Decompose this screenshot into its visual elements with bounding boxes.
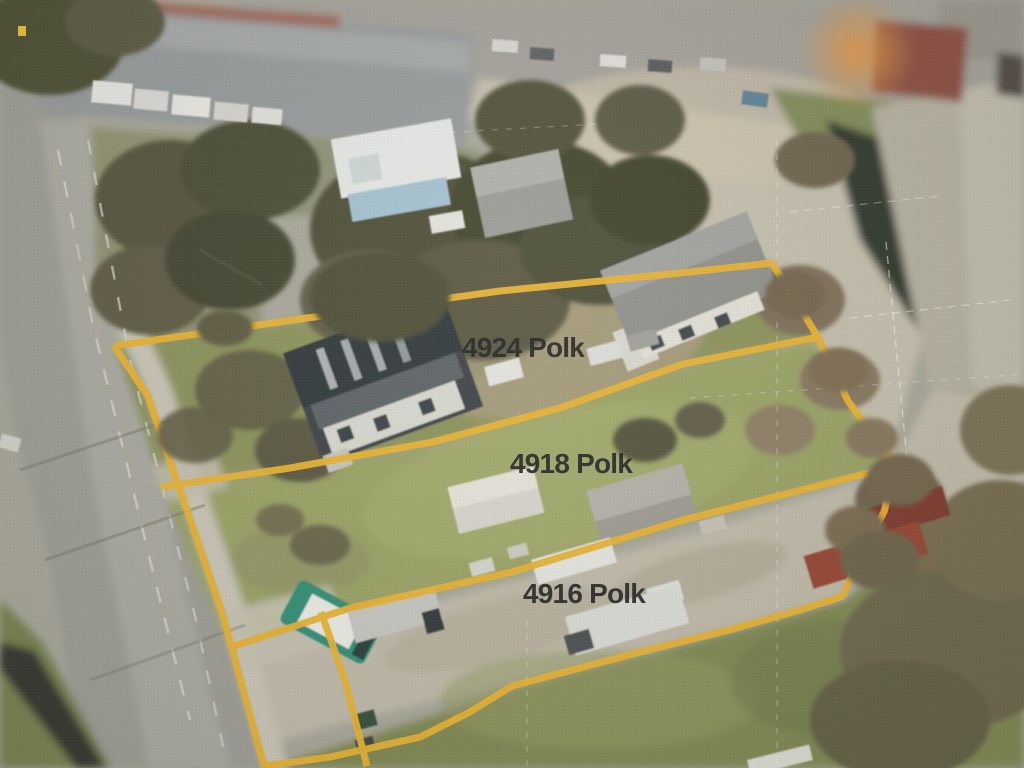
aerial-photo-canvas: 4924 Polk 4918 Polk 4916 Polk xyxy=(0,0,1024,768)
photo-wash xyxy=(0,0,1024,768)
aerial-photo: 4924 Polk 4918 Polk 4916 Polk xyxy=(0,0,1024,768)
